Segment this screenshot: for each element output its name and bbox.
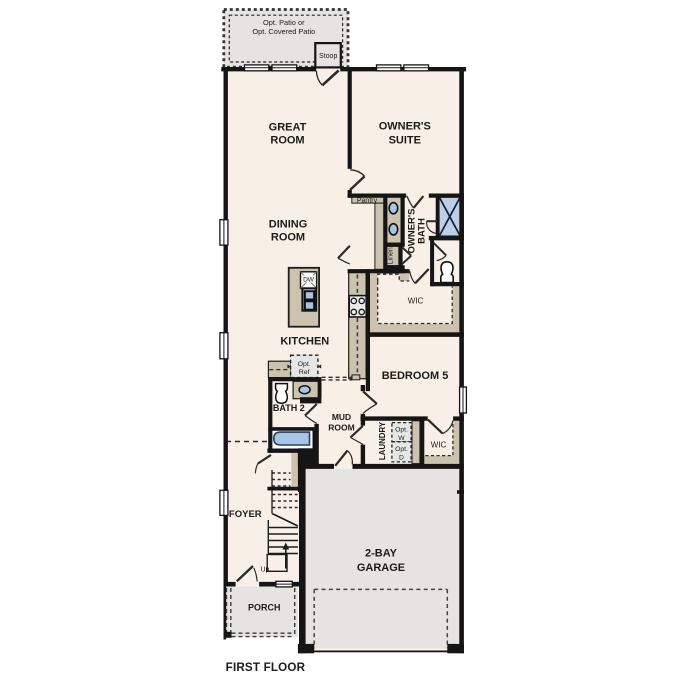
svg-text:MUD: MUD (332, 412, 351, 422)
svg-text:GREAT: GREAT (269, 122, 307, 134)
svg-text:Linen: Linen (388, 247, 395, 264)
svg-text:Opt.: Opt. (395, 446, 408, 453)
svg-text:ROOM: ROOM (271, 231, 305, 243)
svg-text:Pantry: Pantry (357, 197, 378, 204)
svg-text:SUITE: SUITE (389, 135, 421, 147)
svg-text:OWNER'S: OWNER'S (379, 121, 431, 133)
svg-text:ROOM: ROOM (270, 135, 304, 147)
svg-text:BATH 2: BATH 2 (273, 403, 305, 413)
svg-text:FIRST FLOOR: FIRST FLOOR (226, 661, 306, 674)
svg-text:GARAGE: GARAGE (357, 562, 405, 574)
svg-text:KITCHEN: KITCHEN (280, 336, 329, 348)
svg-text:Ref: Ref (299, 369, 310, 376)
svg-text:Opt. Patio or: Opt. Patio or (263, 18, 305, 27)
svg-text:Opt.: Opt. (395, 427, 408, 434)
svg-text:D: D (399, 455, 404, 462)
svg-text:DINING: DINING (269, 219, 308, 231)
svg-text:Opt.: Opt. (298, 361, 311, 368)
svg-text:WIC: WIC (408, 297, 424, 306)
svg-text:BATH: BATH (417, 218, 428, 244)
svg-text:DW: DW (303, 277, 315, 284)
svg-text:LAUNDRY: LAUNDRY (378, 421, 387, 460)
svg-text:FOYER: FOYER (229, 509, 262, 520)
svg-text:Opt. Covered Patio: Opt. Covered Patio (252, 27, 315, 36)
svg-text:Stoop: Stoop (319, 53, 337, 60)
svg-text:ROOM: ROOM (328, 423, 354, 433)
svg-text:BEDROOM 5: BEDROOM 5 (382, 370, 449, 382)
svg-text:Up: Up (261, 567, 270, 574)
svg-text:PORCH: PORCH (248, 603, 281, 613)
svg-text:W: W (398, 435, 405, 442)
svg-text:WIC: WIC (431, 441, 447, 450)
svg-text:2-BAY: 2-BAY (365, 548, 398, 560)
